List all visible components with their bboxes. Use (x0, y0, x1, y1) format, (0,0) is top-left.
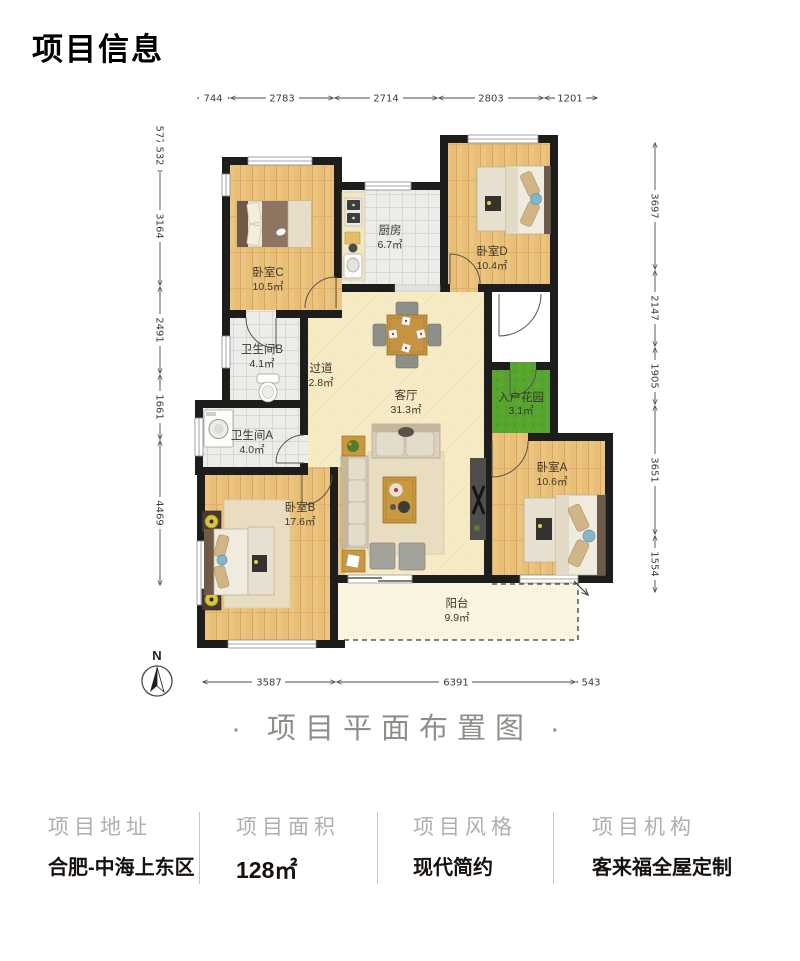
room-area: 10.5㎡ (253, 281, 284, 293)
dim-value: 2147 (649, 295, 660, 320)
info-value-organization: 客来福全屋定制 (592, 851, 732, 880)
dim-value: 1905 (649, 363, 660, 388)
window-icon (222, 336, 230, 368)
window-icon (248, 157, 312, 165)
window-icon (520, 575, 578, 583)
dim-value: 1661 (154, 394, 165, 419)
dim-value: 2714 (373, 94, 398, 105)
compass-north-indicator: N (142, 648, 172, 696)
dim-value: 6391 (443, 678, 468, 689)
room-label: 卧室A (537, 460, 568, 474)
tv-cabinet (470, 458, 486, 540)
dim-value: 3164 (154, 213, 165, 238)
dim-value: 4469 (154, 500, 165, 525)
window-icon (228, 640, 316, 648)
info-divider (553, 812, 554, 884)
bedroom-d-bed (477, 166, 550, 234)
kitchen-threshold (395, 285, 440, 291)
room-area: 17.6㎡ (285, 516, 316, 528)
dim-value: 577 (154, 125, 165, 144)
room-label: 卧室B (285, 500, 316, 514)
window-icon (468, 135, 538, 143)
room-area: 10.6㎡ (537, 476, 568, 488)
info-value-area: 128㎡ (236, 851, 297, 885)
page-title: 项目信息 (32, 24, 164, 69)
sliding-door-icon (348, 575, 412, 583)
washing-machine (204, 410, 233, 447)
bedroom-c-bed (237, 201, 311, 247)
dimension-lines-right: 3697 2147 1905 3651 1554 (649, 143, 662, 592)
bedroom-b-bed (202, 500, 290, 610)
room-area: 9.9㎡ (444, 612, 470, 624)
window-icon (195, 418, 203, 456)
kitchen-counter (342, 192, 365, 280)
info-value-style: 现代简约 (413, 851, 493, 880)
dimension-lines-bottom: 3587 6391 543 (203, 676, 604, 689)
room-label: 过道 (310, 361, 333, 375)
dimension-lines-top: 744 2783 2714 2803 1201 (198, 92, 597, 105)
dim-value: 3651 (649, 457, 660, 482)
info-divider (377, 812, 378, 884)
info-divider (199, 812, 200, 884)
room-area: 10.4㎡ (477, 260, 508, 272)
info-value-address: 合肥-中海上东区 (48, 851, 195, 880)
room-label: 厨房 (379, 224, 402, 237)
dim-value: 3587 (256, 678, 281, 689)
dim-value: 1554 (649, 551, 660, 576)
room-label: 卧室C (252, 265, 283, 279)
room-area: 4.0㎡ (239, 444, 265, 456)
room-area: 2.8㎡ (308, 377, 334, 389)
window-icon (365, 182, 411, 190)
dim-value: 2491 (154, 317, 165, 342)
plan-caption: · 项目平面布置图 · (0, 705, 800, 747)
dim-value: 2783 (269, 94, 294, 105)
dim-value: 1201 (557, 94, 582, 105)
project-info-page: 项目信息 (0, 0, 800, 961)
room-area: 4.1㎡ (249, 358, 275, 370)
dim-value: 3697 (649, 193, 660, 218)
room-label: 卫生间B (241, 342, 283, 356)
dim-value: 2803 (478, 94, 503, 105)
info-label-address: 项目地址 (48, 811, 152, 841)
room-label: 入户花园 (498, 390, 544, 404)
info-label-style: 项目风格 (413, 811, 517, 841)
living-room-sofa-set (341, 424, 444, 572)
dim-value: 543 (581, 678, 600, 689)
room-label: 阳台 (446, 596, 469, 610)
dimension-lines-left: 577 532 3164 2491 1661 4469 (154, 121, 167, 585)
info-label-area: 项目面积 (236, 811, 340, 841)
room-label: 客厅 (395, 388, 418, 402)
window-icon (222, 174, 230, 196)
room-area: 6.7㎡ (377, 239, 403, 251)
bathroom-b-toilet (257, 374, 279, 402)
dim-value: 744 (203, 94, 222, 105)
dim-value: 532 (154, 146, 165, 165)
room-area: 31.3㎡ (391, 404, 422, 416)
room-label: 卧室D (476, 244, 507, 258)
room-area: 3.1㎡ (508, 405, 534, 417)
compass-label: N (152, 648, 161, 663)
info-label-organization: 项目机构 (592, 811, 696, 841)
room-label: 卫生间A (231, 428, 273, 442)
